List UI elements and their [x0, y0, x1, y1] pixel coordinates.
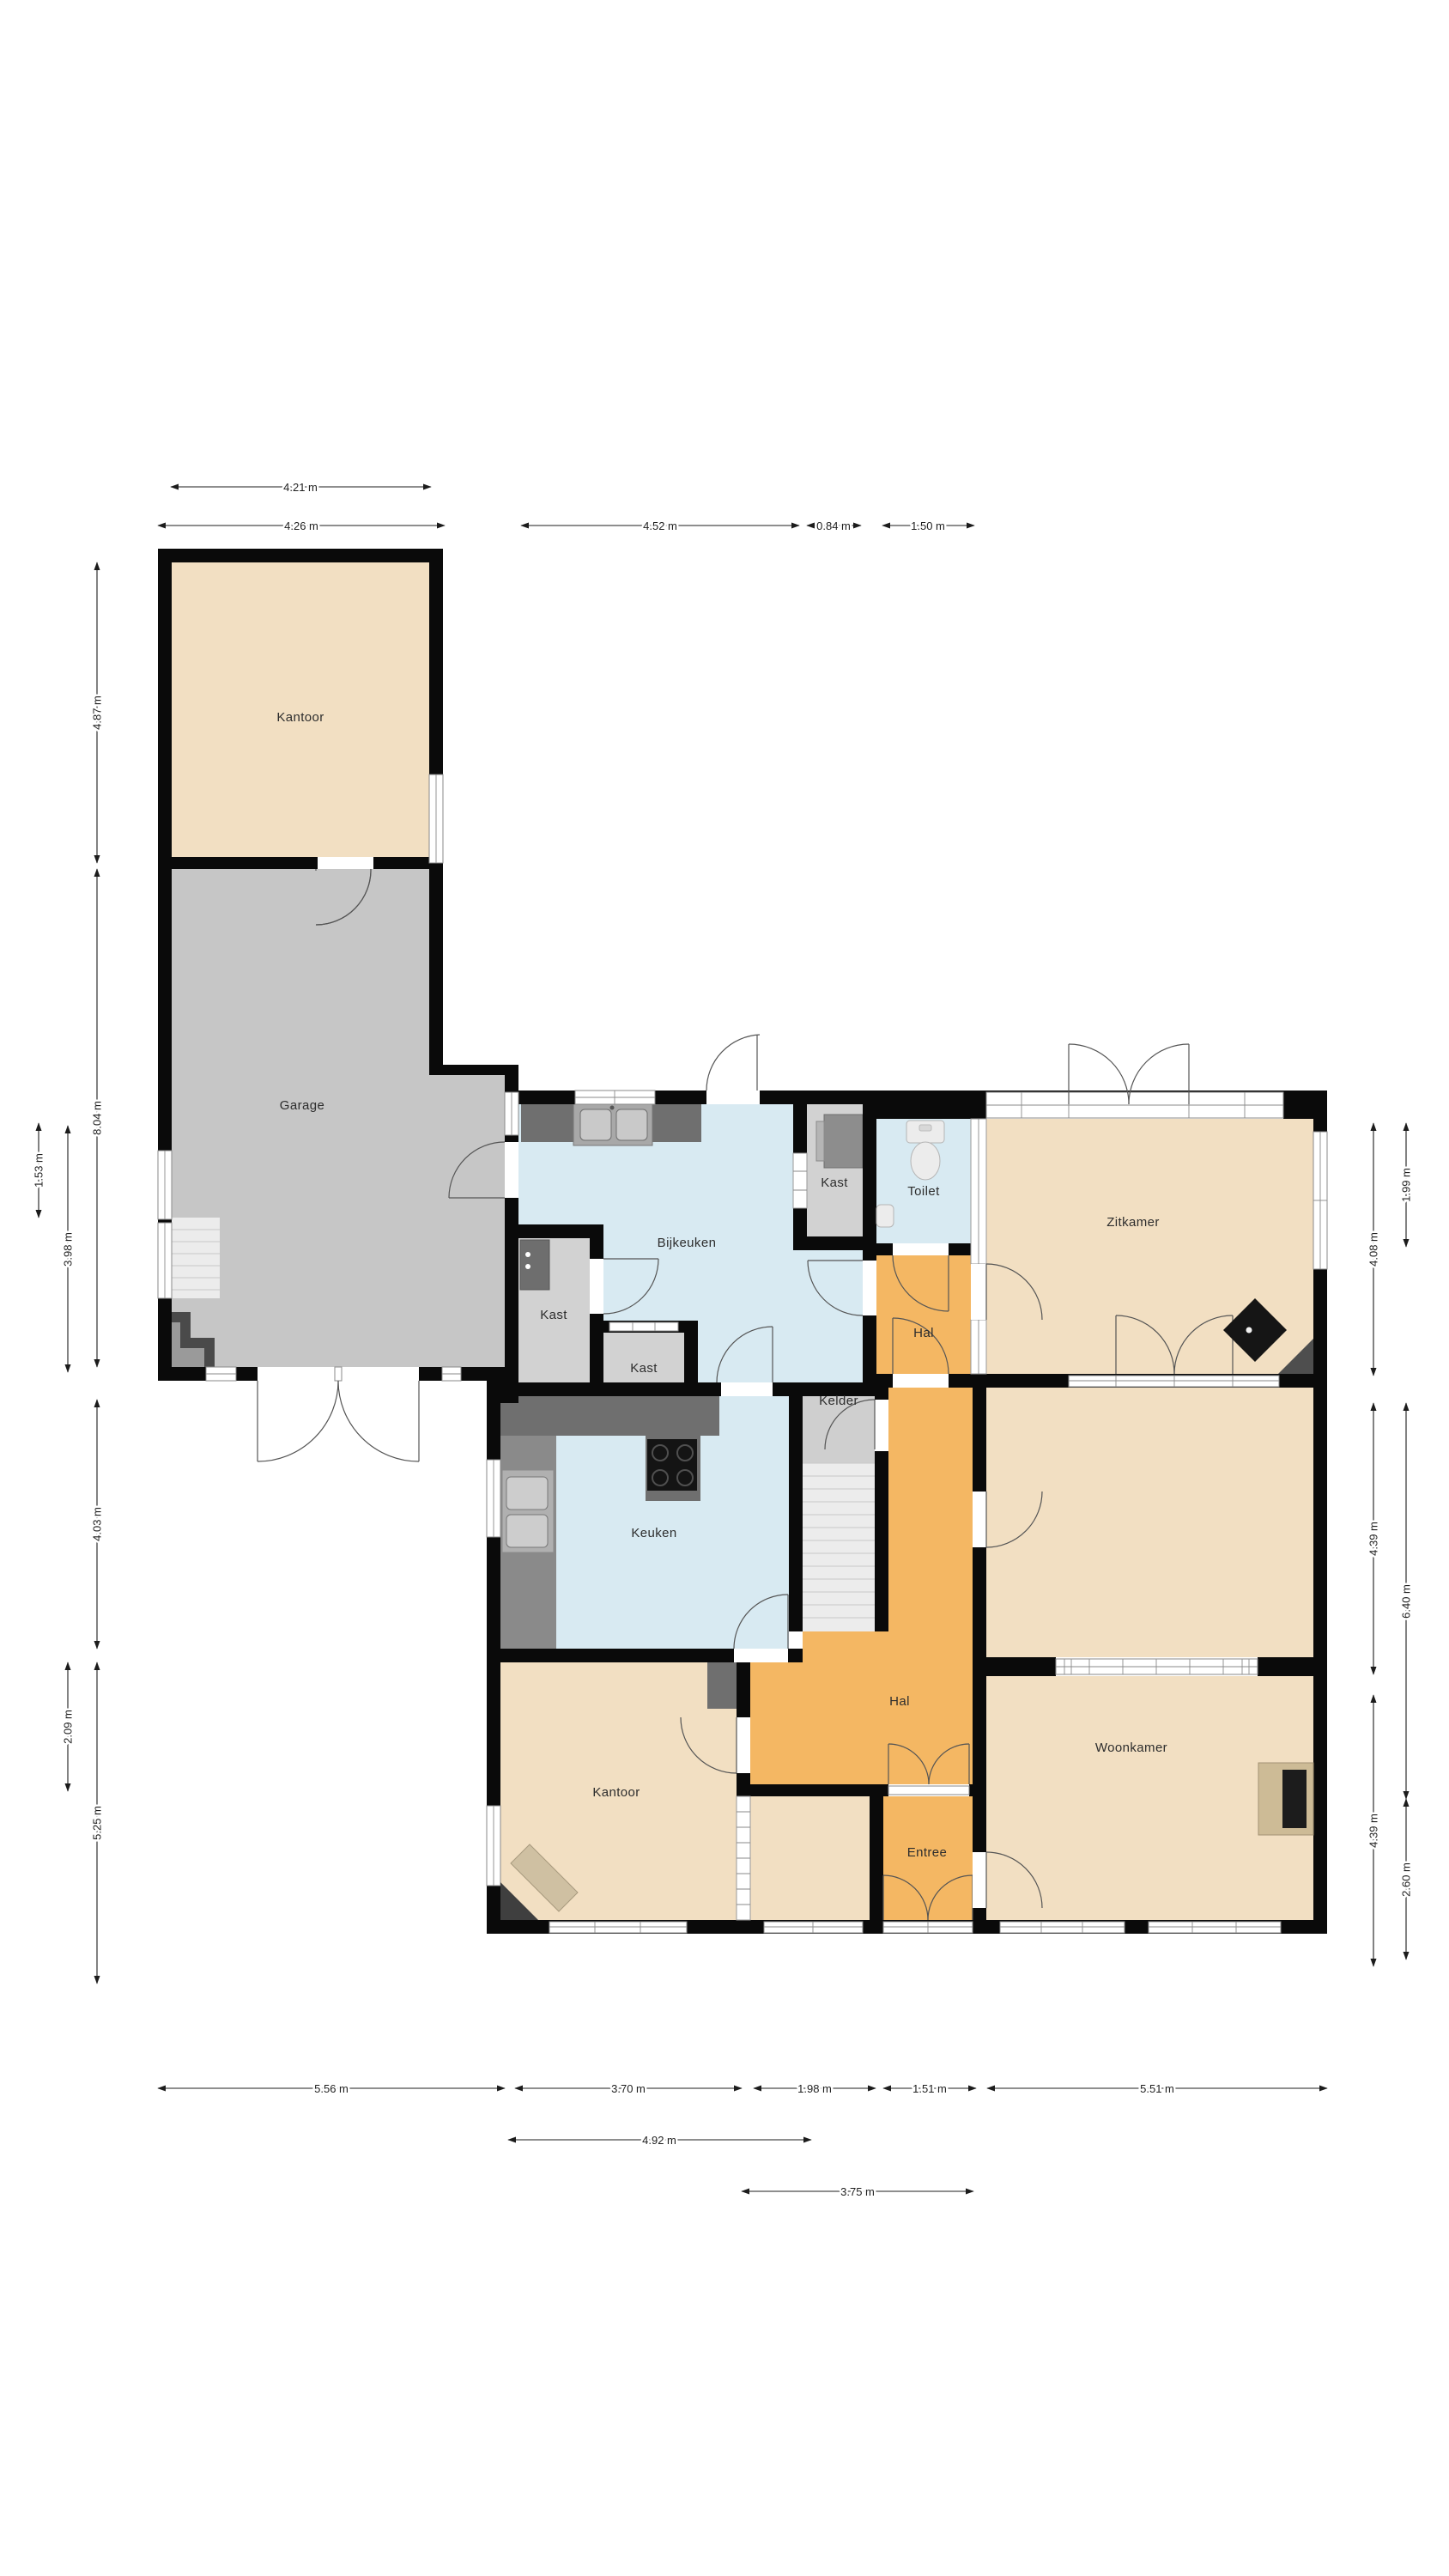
garage-double-door: [258, 1367, 419, 1461]
dimension-top-5: 1.50 m: [882, 519, 974, 532]
room-label-kast-small: Kast: [630, 1361, 658, 1376]
room-label-kast-upper: Kast: [821, 1176, 848, 1190]
svg-text:4.39 m: 4.39 m: [1367, 1814, 1380, 1848]
room-side-room-floor: [750, 1796, 870, 1920]
dimension-left-2: 8.04 m: [91, 869, 104, 1367]
svg-text:1.51 m: 1.51 m: [912, 2082, 947, 2095]
dimension-right-1: 4.08 m: [1367, 1123, 1380, 1376]
cabinet-icon: [816, 1115, 863, 1168]
svg-text:6.40 m: 6.40 m: [1400, 1584, 1413, 1619]
svg-text:1.98 m: 1.98 m: [797, 2082, 832, 2095]
window: [442, 1367, 461, 1381]
dimension-bottom-7: 3.75 m: [742, 2185, 973, 2198]
hand-basin-icon: [876, 1205, 894, 1227]
room-label-hal: Hal: [889, 1694, 910, 1709]
dimension-left-6: 2.09 m: [62, 1662, 75, 1791]
svg-text:5.25 m: 5.25 m: [91, 1806, 104, 1840]
svg-text:1.50 m: 1.50 m: [911, 519, 945, 532]
window: [505, 1092, 518, 1135]
dimension-top-2: 4.26 m: [158, 519, 445, 532]
dimension-bottom-5: 5.51 m: [987, 2082, 1327, 2095]
window: [575, 1091, 655, 1104]
floor-plan: Kantoor Garage Bijkeuken Kast Toilet Zit…: [0, 0, 1449, 2576]
room-label-toilet: Toilet: [907, 1184, 940, 1199]
window-band-zitkamer-bottom: [1069, 1376, 1279, 1387]
dimension-bottom-2: 3.70 m: [515, 2082, 742, 2095]
svg-text:1.53 m: 1.53 m: [33, 1153, 45, 1188]
dimension-top-4: 0.84 m: [807, 519, 861, 532]
room-label-woonkamer: Woonkamer: [1095, 1741, 1167, 1755]
svg-text:2.09 m: 2.09 m: [62, 1710, 75, 1744]
svg-text:4.52 m: 4.52 m: [643, 519, 677, 532]
room-label-kantoor-top: Kantoor: [276, 710, 324, 725]
window: [158, 1223, 172, 1298]
window: [1149, 1922, 1281, 1933]
svg-text:4.08 m: 4.08 m: [1367, 1232, 1380, 1267]
dimension-right-6: 2.60 m: [1400, 1799, 1413, 1959]
svg-text:8.04 m: 8.04 m: [91, 1101, 104, 1135]
kitchen-sink-icon: [502, 1470, 554, 1552]
cooktop-icon: [647, 1439, 697, 1491]
room-garage-floor: [172, 869, 505, 1367]
dimension-right-3: 4.39 m: [1367, 1695, 1380, 1966]
svg-text:4.92 m: 4.92 m: [642, 2134, 676, 2147]
svg-text:4.26 m: 4.26 m: [284, 519, 318, 532]
dimension-left-7: 1.53 m: [33, 1123, 45, 1218]
dimension-bottom-3: 1.98 m: [754, 2082, 876, 2095]
room-middle-floor: [986, 1388, 1313, 1657]
bijkeuken-counter: [521, 1104, 701, 1145]
room-label-entree: Entree: [907, 1845, 948, 1860]
svg-text:3.98 m: 3.98 m: [62, 1232, 75, 1267]
door-bijkeuken-outside: [706, 1035, 760, 1104]
partition-kantoor-glazed: [737, 1796, 750, 1920]
dimension-top-1: 4.21 m: [171, 481, 431, 494]
svg-text:4.03 m: 4.03 m: [91, 1507, 104, 1541]
sink-icon: [573, 1104, 652, 1145]
svg-text:4.21 m: 4.21 m: [283, 481, 318, 494]
dimension-left-3: 4.03 m: [91, 1400, 104, 1649]
room-label-zitkamer: Zitkamer: [1106, 1215, 1160, 1230]
dimension-right-5: 6.40 m: [1400, 1403, 1413, 1799]
room-label-kast-left: Kast: [540, 1308, 567, 1322]
room-label-kantoor: Kantoor: [592, 1785, 640, 1800]
svg-text:3.70 m: 3.70 m: [611, 2082, 646, 2095]
dimension-left-5: 3.98 m: [62, 1126, 75, 1372]
window: [1000, 1922, 1125, 1933]
floorplan-page: Kantoor Garage Bijkeuken Kast Toilet Zit…: [0, 0, 1449, 2576]
dimension-right-4: 1.99 m: [1400, 1123, 1413, 1247]
room-hal-upper-floor: [876, 1255, 971, 1374]
chimney-stub: [707, 1662, 737, 1709]
window: [206, 1367, 236, 1381]
room-label-kelder: Kelder: [819, 1394, 858, 1408]
fireplace-woonkamer-icon: [1258, 1763, 1313, 1835]
window-band-zitkamer-top: [986, 1092, 1283, 1118]
svg-text:2.60 m: 2.60 m: [1400, 1862, 1413, 1897]
svg-text:1.99 m: 1.99 m: [1400, 1168, 1413, 1202]
room-label-hal-upper: Hal: [913, 1326, 934, 1340]
room-label-bijkeuken: Bijkeuken: [658, 1236, 717, 1250]
dimension-left-1: 4.87 m: [91, 562, 104, 863]
dimension-bottom-4: 1.51 m: [883, 2082, 976, 2095]
entry-threshold: [883, 1922, 973, 1933]
window-band-ensuite: [1056, 1659, 1258, 1674]
window: [158, 1151, 172, 1219]
window-hatch-kast: [609, 1322, 678, 1331]
partition-toilet-zitkamer: [971, 1119, 986, 1374]
dimension-bottom-1: 5.56 m: [158, 2082, 505, 2095]
dimension-right-2: 4.39 m: [1367, 1403, 1380, 1674]
dimension-top-3: 4.52 m: [521, 519, 799, 532]
svg-text:3.75 m: 3.75 m: [840, 2185, 875, 2198]
room-label-keuken: Keuken: [631, 1526, 676, 1540]
svg-text:0.84 m: 0.84 m: [816, 519, 851, 532]
door-kast-upper-bifold: [793, 1153, 807, 1208]
room-label-garage: Garage: [280, 1098, 324, 1113]
svg-text:4.87 m: 4.87 m: [91, 696, 104, 730]
window: [764, 1922, 863, 1933]
svg-text:5.51 m: 5.51 m: [1140, 2082, 1174, 2095]
svg-text:5.56 m: 5.56 m: [314, 2082, 349, 2095]
window: [487, 1806, 500, 1886]
window: [429, 775, 443, 863]
window: [1313, 1132, 1327, 1269]
window: [487, 1460, 500, 1537]
dimension-left-4: 5.25 m: [91, 1662, 104, 1984]
garage-stairs-icon: [172, 1218, 220, 1298]
svg-text:4.39 m: 4.39 m: [1367, 1522, 1380, 1556]
cellar-stairs-icon: [803, 1463, 875, 1631]
dimension-bottom-6: 4.92 m: [508, 2134, 811, 2147]
window: [549, 1922, 687, 1933]
